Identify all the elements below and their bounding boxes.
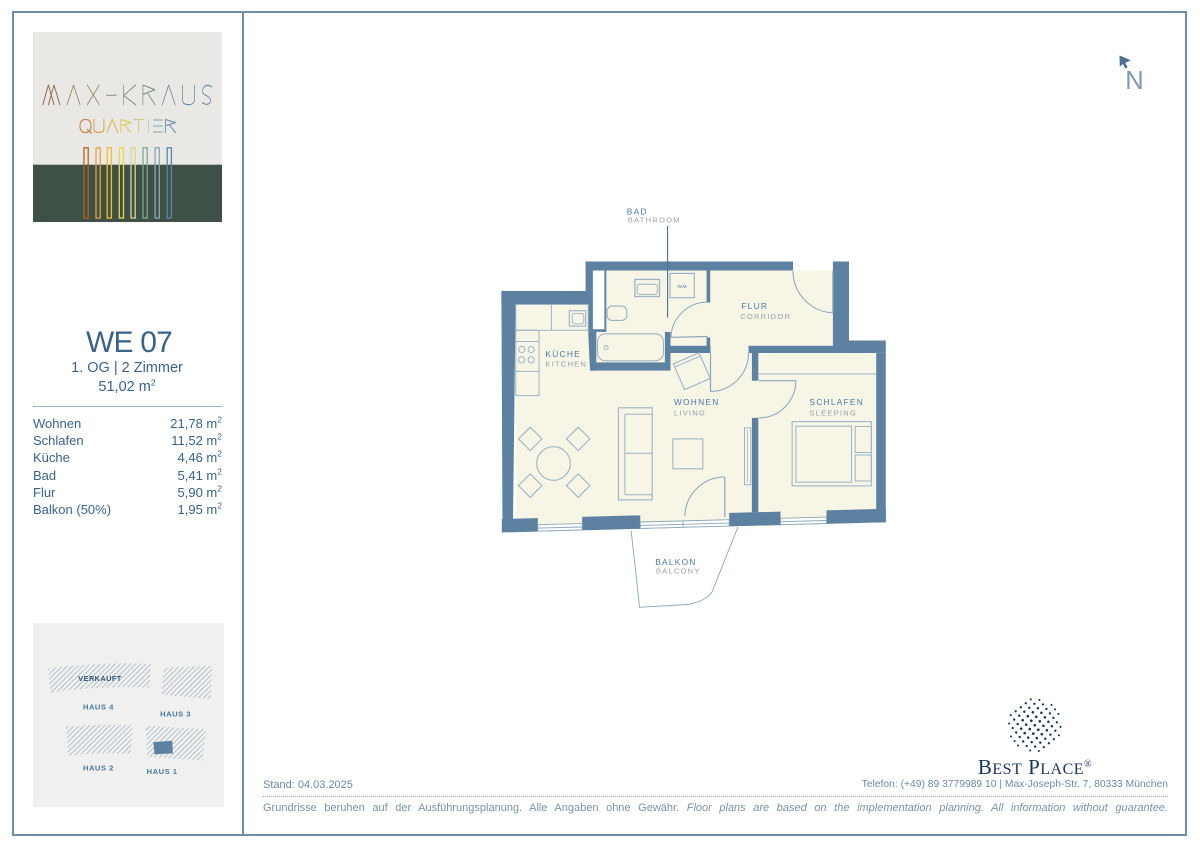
svg-text:WOHNEN: WOHNEN <box>674 397 720 407</box>
svg-text:HAUS 1: HAUS 1 <box>147 767 178 776</box>
svg-text:KITCHEN: KITCHEN <box>545 359 587 368</box>
svg-text:KÜCHE: KÜCHE <box>545 349 581 359</box>
svg-text:BATHROOM: BATHROOM <box>628 216 681 225</box>
svg-text:HAUS 4: HAUS 4 <box>83 703 114 712</box>
svg-text:HAUS 2: HAUS 2 <box>83 764 114 773</box>
svg-text:FLUR: FLUR <box>741 301 768 311</box>
svg-text:LIVING: LIVING <box>674 408 706 417</box>
svg-text:HAUS 3: HAUS 3 <box>160 710 191 719</box>
svg-text:N: N <box>1125 67 1143 95</box>
svg-text:SCHLAFEN: SCHLAFEN <box>809 397 864 407</box>
svg-text:BALCONY: BALCONY <box>656 567 701 576</box>
svg-text:CORRIDOR: CORRIDOR <box>740 312 791 321</box>
svg-text:BALKON: BALKON <box>655 557 696 567</box>
svg-text:SLEEPING: SLEEPING <box>809 408 857 417</box>
svg-text:VERKAUFT: VERKAUFT <box>78 674 122 683</box>
svg-text:WM: WM <box>677 284 687 290</box>
